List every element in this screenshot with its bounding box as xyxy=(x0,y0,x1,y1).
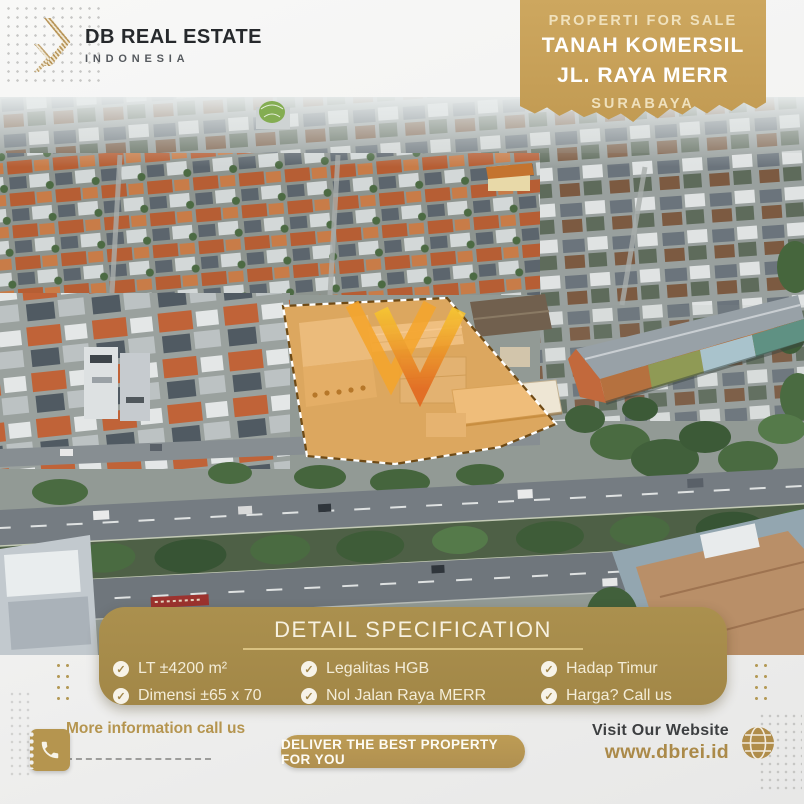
aerial-photo xyxy=(0,97,804,655)
poster: DB REAL ESTATE INDONESIA xyxy=(0,0,804,804)
globe-icon xyxy=(738,723,778,763)
spec-item-label: Hadap Timur xyxy=(566,660,658,678)
brand-name: DB REAL ESTATE xyxy=(85,26,262,49)
dot-pattern-panel-right xyxy=(752,660,770,702)
spec-item-harga: ✓ Harga? Call us xyxy=(541,684,713,709)
spec-grid: ✓ LT ±4200 m² ✓ Dimensi ±65 x 70 ✓ Legal… xyxy=(99,657,727,709)
spec-item-label: Nol Jalan Raya MERR xyxy=(326,687,486,705)
contact-label: More information call us xyxy=(66,720,245,738)
chevron-logo-icon xyxy=(34,16,76,74)
dot-pattern-panel-left xyxy=(54,660,72,702)
brand-logo: DB REAL ESTATE INDONESIA xyxy=(34,16,262,74)
spec-item-dimensi: ✓ Dimensi ±65 x 70 xyxy=(113,684,301,709)
spec-panel: DETAIL SPECIFICATION ✓ LT ±4200 m² ✓ Dim… xyxy=(99,607,727,705)
check-icon: ✓ xyxy=(301,688,317,704)
check-icon: ✓ xyxy=(541,661,557,677)
spec-item-label: Dimensi ±65 x 70 xyxy=(138,687,262,705)
spec-item-label: Legalitas HGB xyxy=(326,660,429,678)
spec-underline xyxy=(243,648,583,650)
sale-ribbon: PROPERTI FOR SALE TANAH KOMERSIL JL. RAY… xyxy=(520,0,766,122)
website-block[interactable]: Visit Our Website www.dbrei.id xyxy=(592,722,778,764)
spec-item-legalitas: ✓ Legalitas HGB xyxy=(301,657,541,682)
spec-title: DETAIL SPECIFICATION xyxy=(99,617,727,643)
website-url[interactable]: www.dbrei.id xyxy=(592,741,729,764)
ribbon-title-line1: TANAH KOMERSIL xyxy=(520,34,766,59)
check-icon: ✓ xyxy=(301,661,317,677)
left-shophouses xyxy=(84,347,150,421)
bottom-left-building xyxy=(0,535,98,655)
website-label: Visit Our Website xyxy=(592,722,729,740)
ribbon-title-line2: JL. RAYA MERR xyxy=(520,64,766,89)
ribbon-location: SURABAYA xyxy=(520,96,766,112)
ribbon-tagline: PROPERTI FOR SALE xyxy=(520,13,766,29)
phone-contact[interactable] xyxy=(30,729,70,771)
spec-item-label: LT ±4200 m² xyxy=(138,660,227,678)
slogan-button[interactable]: DELIVER THE BEST PROPERTY FOR YOU xyxy=(281,735,525,768)
phone-number-line xyxy=(66,744,211,760)
spec-item-lt: ✓ LT ±4200 m² xyxy=(113,657,301,682)
check-icon: ✓ xyxy=(113,661,129,677)
check-icon: ✓ xyxy=(541,688,557,704)
check-icon: ✓ xyxy=(113,688,129,704)
spec-item-hadap: ✓ Hadap Timur xyxy=(541,657,713,682)
brand-subtitle: INDONESIA xyxy=(85,53,262,65)
spec-item-nol-jalan: ✓ Nol Jalan Raya MERR xyxy=(301,684,541,709)
phone-icon xyxy=(39,739,61,761)
spec-item-label: Harga? Call us xyxy=(566,687,672,705)
